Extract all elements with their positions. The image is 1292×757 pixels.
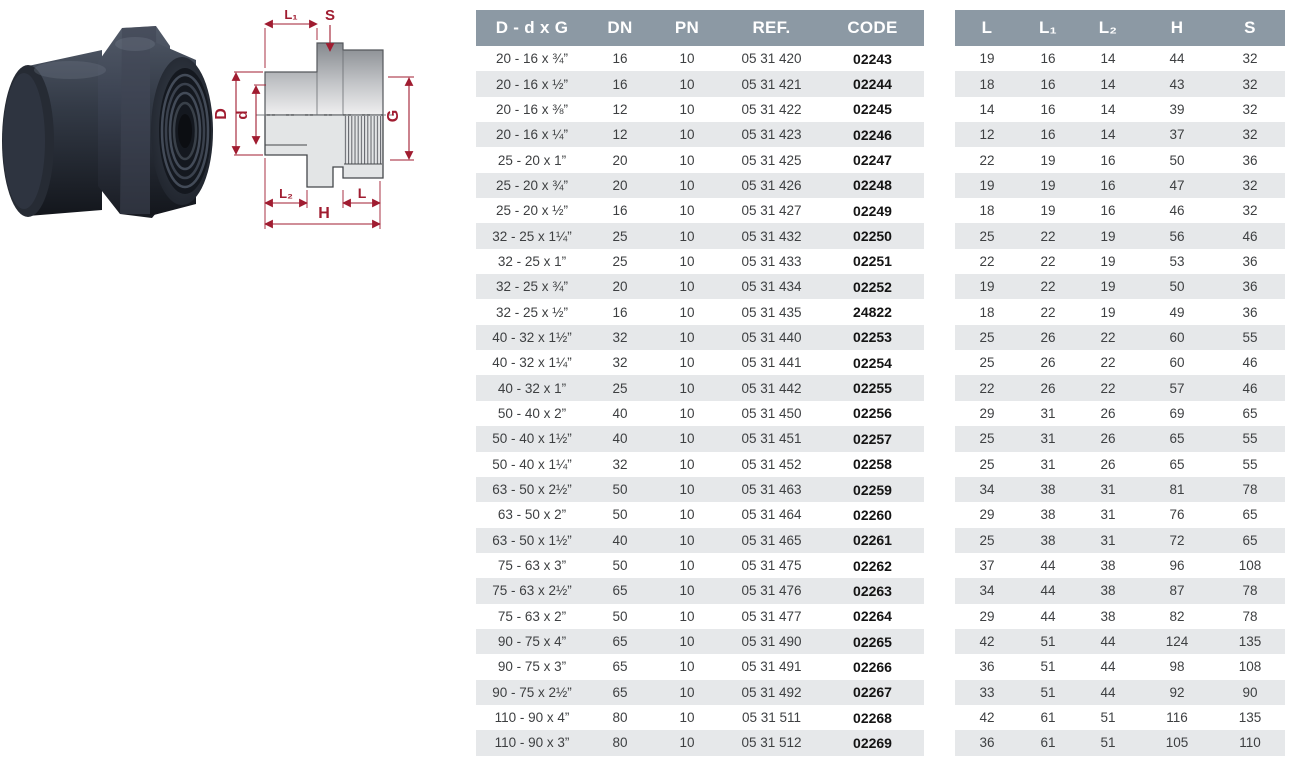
table-cell: 36 [1215, 274, 1285, 299]
table-cell: 50 - 40 x 1½” [476, 426, 588, 451]
table-cell: 20 [588, 274, 652, 299]
table-cell: 57 [1139, 375, 1215, 400]
table-cell: 25 [588, 223, 652, 248]
table-row: 40 - 32 x 1¼”321005 31 44102254 [476, 350, 924, 375]
column-header: L [955, 10, 1019, 46]
table-cell: 42 [955, 705, 1019, 730]
table-cell: 05 31 465 [722, 528, 821, 553]
table-cell: 38 [1077, 553, 1139, 578]
table-cell: 05 31 440 [722, 325, 821, 350]
table-row: 32 - 25 x 1¼”251005 31 43202250 [476, 223, 924, 248]
table-cell: 25 - 20 x ¾” [476, 173, 588, 198]
table-row: 2222195336 [955, 249, 1285, 274]
table-cell: 44 [1139, 46, 1215, 71]
table-cell: 10 [652, 375, 722, 400]
table-cell: 55 [1215, 426, 1285, 451]
table-cell: 36 [1215, 299, 1285, 324]
table-cell: 10 [652, 604, 722, 629]
table-row: 2538317265 [955, 528, 1285, 553]
table-cell: 10 [652, 426, 722, 451]
table-cell: 32 - 25 x 1¼” [476, 223, 588, 248]
table-cell: 31 [1077, 477, 1139, 502]
table-cell: 10 [652, 173, 722, 198]
table-cell: 40 [588, 401, 652, 426]
table-row: 2226225746 [955, 375, 1285, 400]
table-cell: 50 [588, 502, 652, 527]
header-row: LL₁L₂HS [955, 10, 1285, 46]
table-cell: 25 [955, 223, 1019, 248]
table-cell: 78 [1215, 477, 1285, 502]
table-cell: 65 [1139, 452, 1215, 477]
table-cell: 19 [1019, 147, 1077, 172]
table-row: 25 - 20 x ½”161005 31 42702249 [476, 198, 924, 223]
table-cell: 39 [1139, 97, 1215, 122]
table-cell: 05 31 434 [722, 274, 821, 299]
table-cell: 16 [1019, 71, 1077, 96]
table-cell: 46 [1139, 198, 1215, 223]
table-row: 75 - 63 x 2½”651005 31 47602263 [476, 578, 924, 603]
table-cell: 10 [652, 299, 722, 324]
dim-label-h: H [318, 205, 330, 222]
table-cell: 38 [1019, 502, 1077, 527]
table-row: 1819164632 [955, 198, 1285, 223]
table-cell: 25 [588, 375, 652, 400]
table-cell: 80 [588, 730, 652, 755]
table-cell: 02268 [821, 705, 924, 730]
table-cell: 05 31 432 [722, 223, 821, 248]
table-row: 90 - 75 x 3”651005 31 49102266 [476, 654, 924, 679]
table-cell: 65 [1215, 528, 1285, 553]
table-cell: 69 [1139, 401, 1215, 426]
table-cell: 116 [1139, 705, 1215, 730]
table-cell: 05 31 475 [722, 553, 821, 578]
dim-label-D: D [213, 108, 230, 120]
table-cell: 43 [1139, 71, 1215, 96]
table-cell: 75 - 63 x 2” [476, 604, 588, 629]
table-cell: 96 [1139, 553, 1215, 578]
table-cell: 25 - 20 x 1” [476, 147, 588, 172]
table-cell: 61 [1019, 705, 1077, 730]
table-cell: 05 31 427 [722, 198, 821, 223]
table-row: 110 - 90 x 3”801005 31 51202269 [476, 730, 924, 755]
table-cell: 92 [1139, 680, 1215, 705]
table-cell: 65 [588, 629, 652, 654]
table-cell: 26 [1019, 325, 1077, 350]
table-cell: 34 [955, 578, 1019, 603]
table-cell: 34 [955, 477, 1019, 502]
table-cell: 40 [588, 528, 652, 553]
table-cell: 29 [955, 502, 1019, 527]
product-photo [0, 18, 215, 223]
table-row: 3444388778 [955, 578, 1285, 603]
table-cell: 32 [1215, 46, 1285, 71]
table-cell: 05 31 464 [722, 502, 821, 527]
table-cell: 55 [1215, 452, 1285, 477]
table-cell: 44 [1019, 553, 1077, 578]
table-cell: 29 [955, 401, 1019, 426]
table-cell: 49 [1139, 299, 1215, 324]
table-cell: 05 31 452 [722, 452, 821, 477]
table-cell: 105 [1139, 730, 1215, 755]
table-cell: 78 [1215, 578, 1285, 603]
table-cell: 16 [588, 299, 652, 324]
table-row: 75 - 63 x 2”501005 31 47702264 [476, 604, 924, 629]
table-cell: 40 - 32 x 1” [476, 375, 588, 400]
column-header: S [1215, 10, 1285, 46]
table-cell: 12 [955, 122, 1019, 147]
table-row: 32 - 25 x ½”161005 31 43524822 [476, 299, 924, 324]
table-cell: 05 31 425 [722, 147, 821, 172]
table-cell: 02265 [821, 629, 924, 654]
table-row: 2944388278 [955, 604, 1285, 629]
table-cell: 56 [1139, 223, 1215, 248]
table-cell: 10 [652, 350, 722, 375]
table-row: 2531266555 [955, 452, 1285, 477]
table-cell: 26 [1019, 350, 1077, 375]
table-cell: 02262 [821, 553, 924, 578]
table-cell: 37 [955, 553, 1019, 578]
table-cell: 05 31 511 [722, 705, 821, 730]
table-cell: 10 [652, 680, 722, 705]
table-row: 20 - 16 x ⅜”121005 31 42202245 [476, 97, 924, 122]
table-cell: 110 [1215, 730, 1285, 755]
table-row: 40 - 32 x 1”251005 31 44202255 [476, 375, 924, 400]
table-cell: 02246 [821, 122, 924, 147]
table-cell: 90 - 75 x 4” [476, 629, 588, 654]
table-cell: 05 31 492 [722, 680, 821, 705]
table-cell: 10 [652, 223, 722, 248]
thread-hatch [344, 116, 382, 164]
table-row: 50 - 40 x 1½”401005 31 45102257 [476, 426, 924, 451]
table-cell: 02255 [821, 375, 924, 400]
table-cell: 02260 [821, 502, 924, 527]
table-cell: 50 [1139, 274, 1215, 299]
table-cell: 22 [1019, 299, 1077, 324]
cross-section-drawing: L₁ S D d G L₂ L H [210, 0, 475, 255]
table-row: 25 - 20 x ¾”201005 31 42602248 [476, 173, 924, 198]
table-cell: 10 [652, 553, 722, 578]
table-cell: 110 - 90 x 3” [476, 730, 588, 755]
table-row: 425144124135 [955, 629, 1285, 654]
table-cell: 05 31 433 [722, 249, 821, 274]
table-cell: 22 [1077, 350, 1139, 375]
table-row: 1416143932 [955, 97, 1285, 122]
table-cell: 22 [1077, 325, 1139, 350]
table-cell: 22 [1019, 249, 1077, 274]
column-header: PN [652, 10, 722, 46]
table-row: 2526226055 [955, 325, 1285, 350]
table-cell: 02261 [821, 528, 924, 553]
table-cell: 20 - 16 x ⅜” [476, 97, 588, 122]
table-row: 40 - 32 x 1½”321005 31 44002253 [476, 325, 924, 350]
table-cell: 02257 [821, 426, 924, 451]
table-row: 1916144432 [955, 46, 1285, 71]
table-cell: 10 [652, 578, 722, 603]
dim-label-g: G [385, 110, 402, 122]
table-cell: 10 [652, 502, 722, 527]
table-cell: 25 - 20 x ½” [476, 198, 588, 223]
table-cell: 19 [1077, 249, 1139, 274]
table-cell: 32 [1215, 198, 1285, 223]
table-cell: 02243 [821, 46, 924, 71]
table-cell: 02258 [821, 452, 924, 477]
table-cell: 31 [1019, 401, 1077, 426]
table-cell: 36 [1215, 249, 1285, 274]
table-cell: 44 [1019, 578, 1077, 603]
table-cell: 29 [955, 604, 1019, 629]
table-cell: 02253 [821, 325, 924, 350]
fitting-body-upper [265, 43, 383, 115]
table-cell: 65 [1139, 426, 1215, 451]
table-cell: 75 - 63 x 3” [476, 553, 588, 578]
table-row: 1816144332 [955, 71, 1285, 96]
table-cell: 19 [1019, 198, 1077, 223]
table-cell: 40 - 32 x 1½” [476, 325, 588, 350]
column-header: DN [588, 10, 652, 46]
table-row: 1822194936 [955, 299, 1285, 324]
column-header: L₂ [1077, 10, 1139, 46]
table-row: 366151105110 [955, 730, 1285, 755]
table-cell: 31 [1019, 452, 1077, 477]
table-row: 20 - 16 x ¾”161005 31 42002243 [476, 46, 924, 71]
column-header: D - d x G [476, 10, 588, 46]
table-cell: 22 [955, 249, 1019, 274]
header-row: D - d x GDNPNREF.CODE [476, 10, 924, 46]
table-cell: 10 [652, 654, 722, 679]
table-cell: 10 [652, 249, 722, 274]
table-row: 20 - 16 x ½”161005 31 42102244 [476, 71, 924, 96]
table-row: 3438318178 [955, 477, 1285, 502]
table-cell: 18 [955, 299, 1019, 324]
table-cell: 63 - 50 x 2” [476, 502, 588, 527]
table-cell: 10 [652, 122, 722, 147]
table-cell: 19 [955, 46, 1019, 71]
table-cell: 32 - 25 x ¾” [476, 274, 588, 299]
table-cell: 81 [1139, 477, 1215, 502]
table-cell: 05 31 512 [722, 730, 821, 755]
table-cell: 10 [652, 274, 722, 299]
table-cell: 20 - 16 x ¼” [476, 122, 588, 147]
table-cell: 31 [1077, 502, 1139, 527]
table-cell: 75 - 63 x 2½” [476, 578, 588, 603]
table-cell: 14 [1077, 46, 1139, 71]
table-cell: 44 [1077, 654, 1139, 679]
table-row: 75 - 63 x 3”501005 31 47502262 [476, 553, 924, 578]
table-cell: 65 [588, 654, 652, 679]
table-cell: 36 [955, 654, 1019, 679]
table-cell: 31 [1077, 528, 1139, 553]
table-cell: 05 31 450 [722, 401, 821, 426]
table-cell: 22 [955, 375, 1019, 400]
table-cell: 32 [1215, 97, 1285, 122]
table-cell: 50 [588, 553, 652, 578]
table-cell: 55 [1215, 325, 1285, 350]
table-cell: 51 [1077, 730, 1139, 755]
table-cell: 02247 [821, 147, 924, 172]
table-cell: 108 [1215, 654, 1285, 679]
dim-label-l1: L₁ [284, 7, 297, 22]
table-cell: 50 [588, 604, 652, 629]
table-cell: 60 [1139, 325, 1215, 350]
table-cell: 10 [652, 705, 722, 730]
table-cell: 65 [1215, 401, 1285, 426]
table-row: 110 - 90 x 4”801005 31 51102268 [476, 705, 924, 730]
table-cell: 38 [1019, 528, 1077, 553]
table-cell: 50 - 40 x 1¼” [476, 452, 588, 477]
table-cell: 02250 [821, 223, 924, 248]
table-cell: 25 [955, 528, 1019, 553]
table-row: 25 - 20 x 1”201005 31 42502247 [476, 147, 924, 172]
table-cell: 51 [1077, 705, 1139, 730]
column-header: H [1139, 10, 1215, 46]
table-row: 3351449290 [955, 680, 1285, 705]
table-cell: 05 31 442 [722, 375, 821, 400]
table-cell: 44 [1077, 629, 1139, 654]
table-cell: 26 [1077, 401, 1139, 426]
table-cell: 19 [1077, 299, 1139, 324]
table-cell: 05 31 491 [722, 654, 821, 679]
table-cell: 38 [1019, 477, 1077, 502]
table-cell: 10 [652, 730, 722, 755]
table-cell: 78 [1215, 604, 1285, 629]
table-cell: 24822 [821, 299, 924, 324]
table-cell: 05 31 420 [722, 46, 821, 71]
dimensions-table: LL₁L₂HS191614443218161443321416143932121… [955, 10, 1285, 756]
table-cell: 46 [1215, 223, 1285, 248]
table-cell: 02267 [821, 680, 924, 705]
table-cell: 37 [1139, 122, 1215, 147]
table-cell: 05 31 435 [722, 299, 821, 324]
table-cell: 10 [652, 147, 722, 172]
table-cell: 19 [1077, 274, 1139, 299]
table-cell: 32 [588, 325, 652, 350]
table-row: 2531266555 [955, 426, 1285, 451]
table-cell: 25 [955, 350, 1019, 375]
column-header: L₁ [1019, 10, 1077, 46]
table-cell: 65 [588, 680, 652, 705]
table-cell: 02248 [821, 173, 924, 198]
table-cell: 12 [588, 122, 652, 147]
table-row: 63 - 50 x 1½”401005 31 46502261 [476, 528, 924, 553]
table-cell: 80 [588, 705, 652, 730]
table-cell: 16 [588, 46, 652, 71]
table-cell: 20 - 16 x ½” [476, 71, 588, 96]
table-cell: 02244 [821, 71, 924, 96]
table-cell: 98 [1139, 654, 1215, 679]
table-cell: 63 - 50 x 1½” [476, 528, 588, 553]
table-cell: 26 [1077, 452, 1139, 477]
table-row: 1919164732 [955, 173, 1285, 198]
table-cell: 02254 [821, 350, 924, 375]
table-cell: 02249 [821, 198, 924, 223]
table-cell: 02269 [821, 730, 924, 755]
table-cell: 76 [1139, 502, 1215, 527]
table-cell: 05 31 490 [722, 629, 821, 654]
table-cell: 05 31 441 [722, 350, 821, 375]
technical-drawing: L₁ S D d G L₂ L H [210, 0, 475, 255]
table-cell: 05 31 421 [722, 71, 821, 96]
table-cell: 36 [955, 730, 1019, 755]
table-cell: 90 - 75 x 2½” [476, 680, 588, 705]
table-cell: 19 [955, 173, 1019, 198]
table-cell: 50 [588, 477, 652, 502]
table-cell: 05 31 476 [722, 578, 821, 603]
table-row: 32 - 25 x 1”251005 31 43302251 [476, 249, 924, 274]
table-cell: 10 [652, 528, 722, 553]
table-cell: 10 [652, 71, 722, 96]
table-cell: 90 - 75 x 3” [476, 654, 588, 679]
table-cell: 38 [1077, 578, 1139, 603]
table-cell: 05 31 423 [722, 122, 821, 147]
table-cell: 10 [652, 325, 722, 350]
table-cell: 44 [1077, 680, 1139, 705]
column-header: REF. [722, 10, 821, 46]
table-cell: 16 [1019, 122, 1077, 147]
table-cell: 65 [1215, 502, 1285, 527]
table-cell: 50 - 40 x 2” [476, 401, 588, 426]
table-cell: 02252 [821, 274, 924, 299]
table-cell: 16 [1077, 173, 1139, 198]
table-cell: 51 [1019, 680, 1077, 705]
table-cell: 14 [1077, 71, 1139, 96]
table-cell: 16 [1019, 46, 1077, 71]
table-row: 2938317665 [955, 502, 1285, 527]
table-row: 2526226046 [955, 350, 1285, 375]
table-cell: 25 [955, 426, 1019, 451]
table-row: 1216143732 [955, 122, 1285, 147]
table-cell: 02245 [821, 97, 924, 122]
table-cell: 32 [1215, 173, 1285, 198]
table-cell: 44 [1019, 604, 1077, 629]
table-row: 20 - 16 x ¼”121005 31 42302246 [476, 122, 924, 147]
table-cell: 38 [1077, 604, 1139, 629]
table-cell: 10 [652, 97, 722, 122]
table-cell: 10 [652, 629, 722, 654]
table-cell: 02264 [821, 604, 924, 629]
table-cell: 32 - 25 x ½” [476, 299, 588, 324]
table-cell: 36 [1215, 147, 1285, 172]
table-cell: 16 [588, 71, 652, 96]
table-row: 90 - 75 x 2½”651005 31 49202267 [476, 680, 924, 705]
table-cell: 19 [955, 274, 1019, 299]
table-cell: 32 [588, 452, 652, 477]
dim-label-d: d [234, 110, 251, 119]
table-cell: 108 [1215, 553, 1285, 578]
table-cell: 31 [1019, 426, 1077, 451]
table-cell: 50 [1139, 147, 1215, 172]
table-cell: 135 [1215, 705, 1285, 730]
table-cell: 22 [1077, 375, 1139, 400]
table-row: 32 - 25 x ¾”201005 31 43402252 [476, 274, 924, 299]
dim-label-s: S [325, 7, 335, 24]
table-cell: 135 [1215, 629, 1285, 654]
table-cell: 10 [652, 198, 722, 223]
table-cell: 26 [1077, 426, 1139, 451]
table-cell: 32 [1215, 71, 1285, 96]
table-row: 50 - 40 x 1¼”321005 31 45202258 [476, 452, 924, 477]
table-cell: 16 [1077, 198, 1139, 223]
table-cell: 53 [1139, 249, 1215, 274]
table-cell: 14 [955, 97, 1019, 122]
table-cell: 10 [652, 401, 722, 426]
table-cell: 19 [1077, 223, 1139, 248]
table-cell: 10 [652, 46, 722, 71]
table-row: 37443896108 [955, 553, 1285, 578]
table-cell: 10 [652, 452, 722, 477]
table-cell: 22 [1019, 274, 1077, 299]
table-cell: 51 [1019, 629, 1077, 654]
table-cell: 10 [652, 477, 722, 502]
